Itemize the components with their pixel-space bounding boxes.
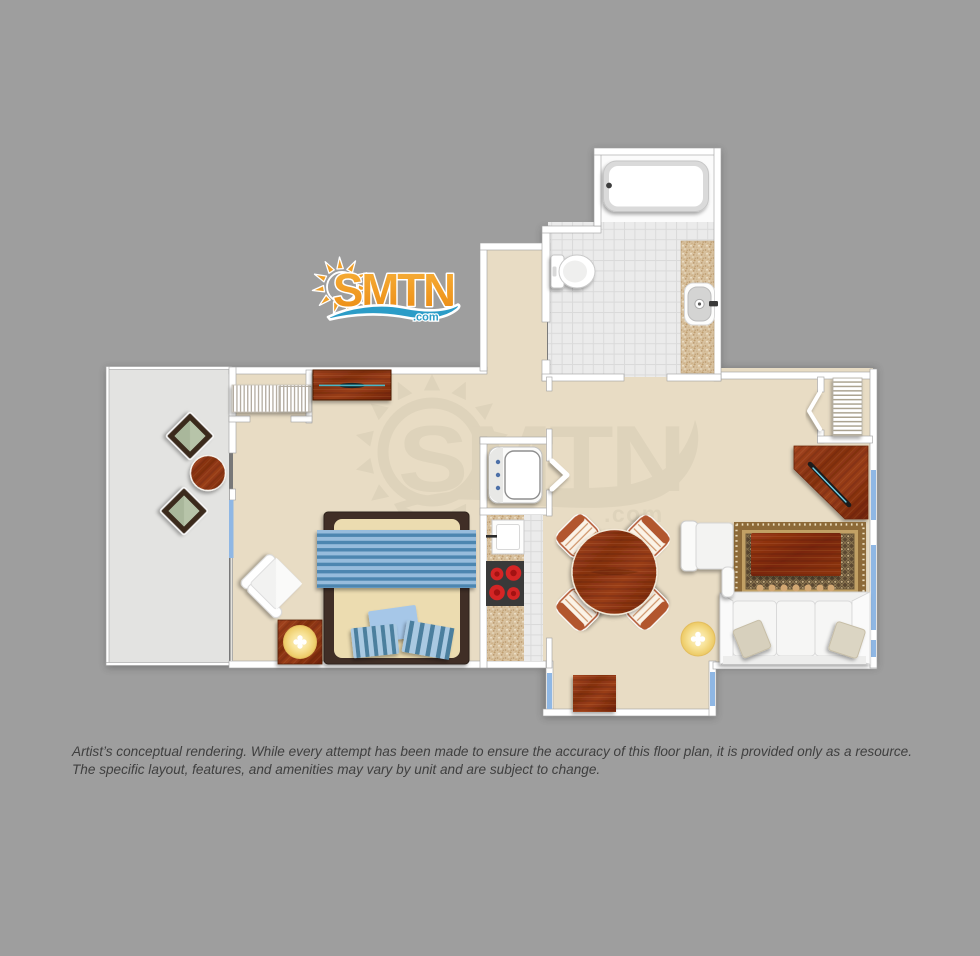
svg-text:.com: .com xyxy=(413,312,439,324)
svg-text:The specific layout, features,: The specific layout, features, and ameni… xyxy=(72,762,600,777)
svg-text:Artist’s conceptual rendering.: Artist’s conceptual rendering. While eve… xyxy=(71,744,912,759)
